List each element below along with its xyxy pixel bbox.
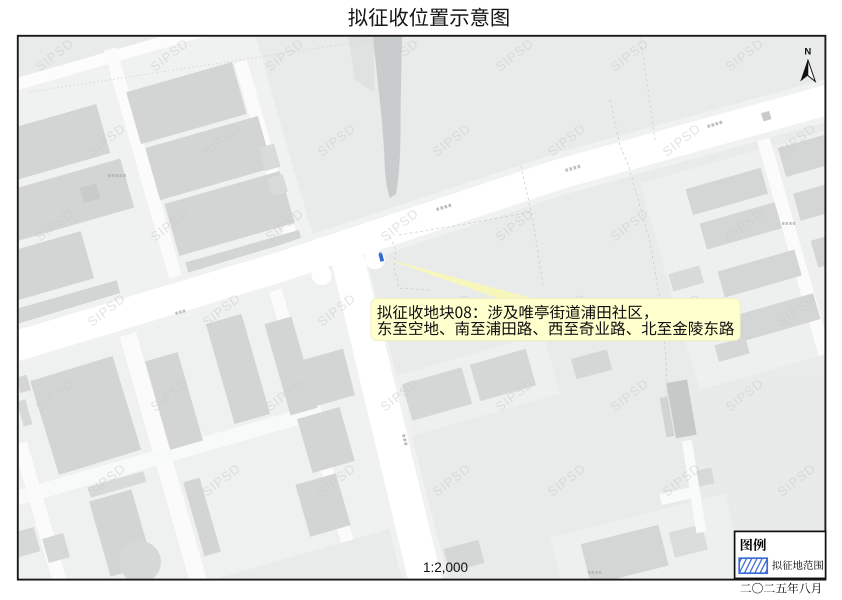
svg-text:N: N: [804, 47, 811, 58]
svg-text:1:2,000: 1:2,000: [423, 560, 468, 575]
